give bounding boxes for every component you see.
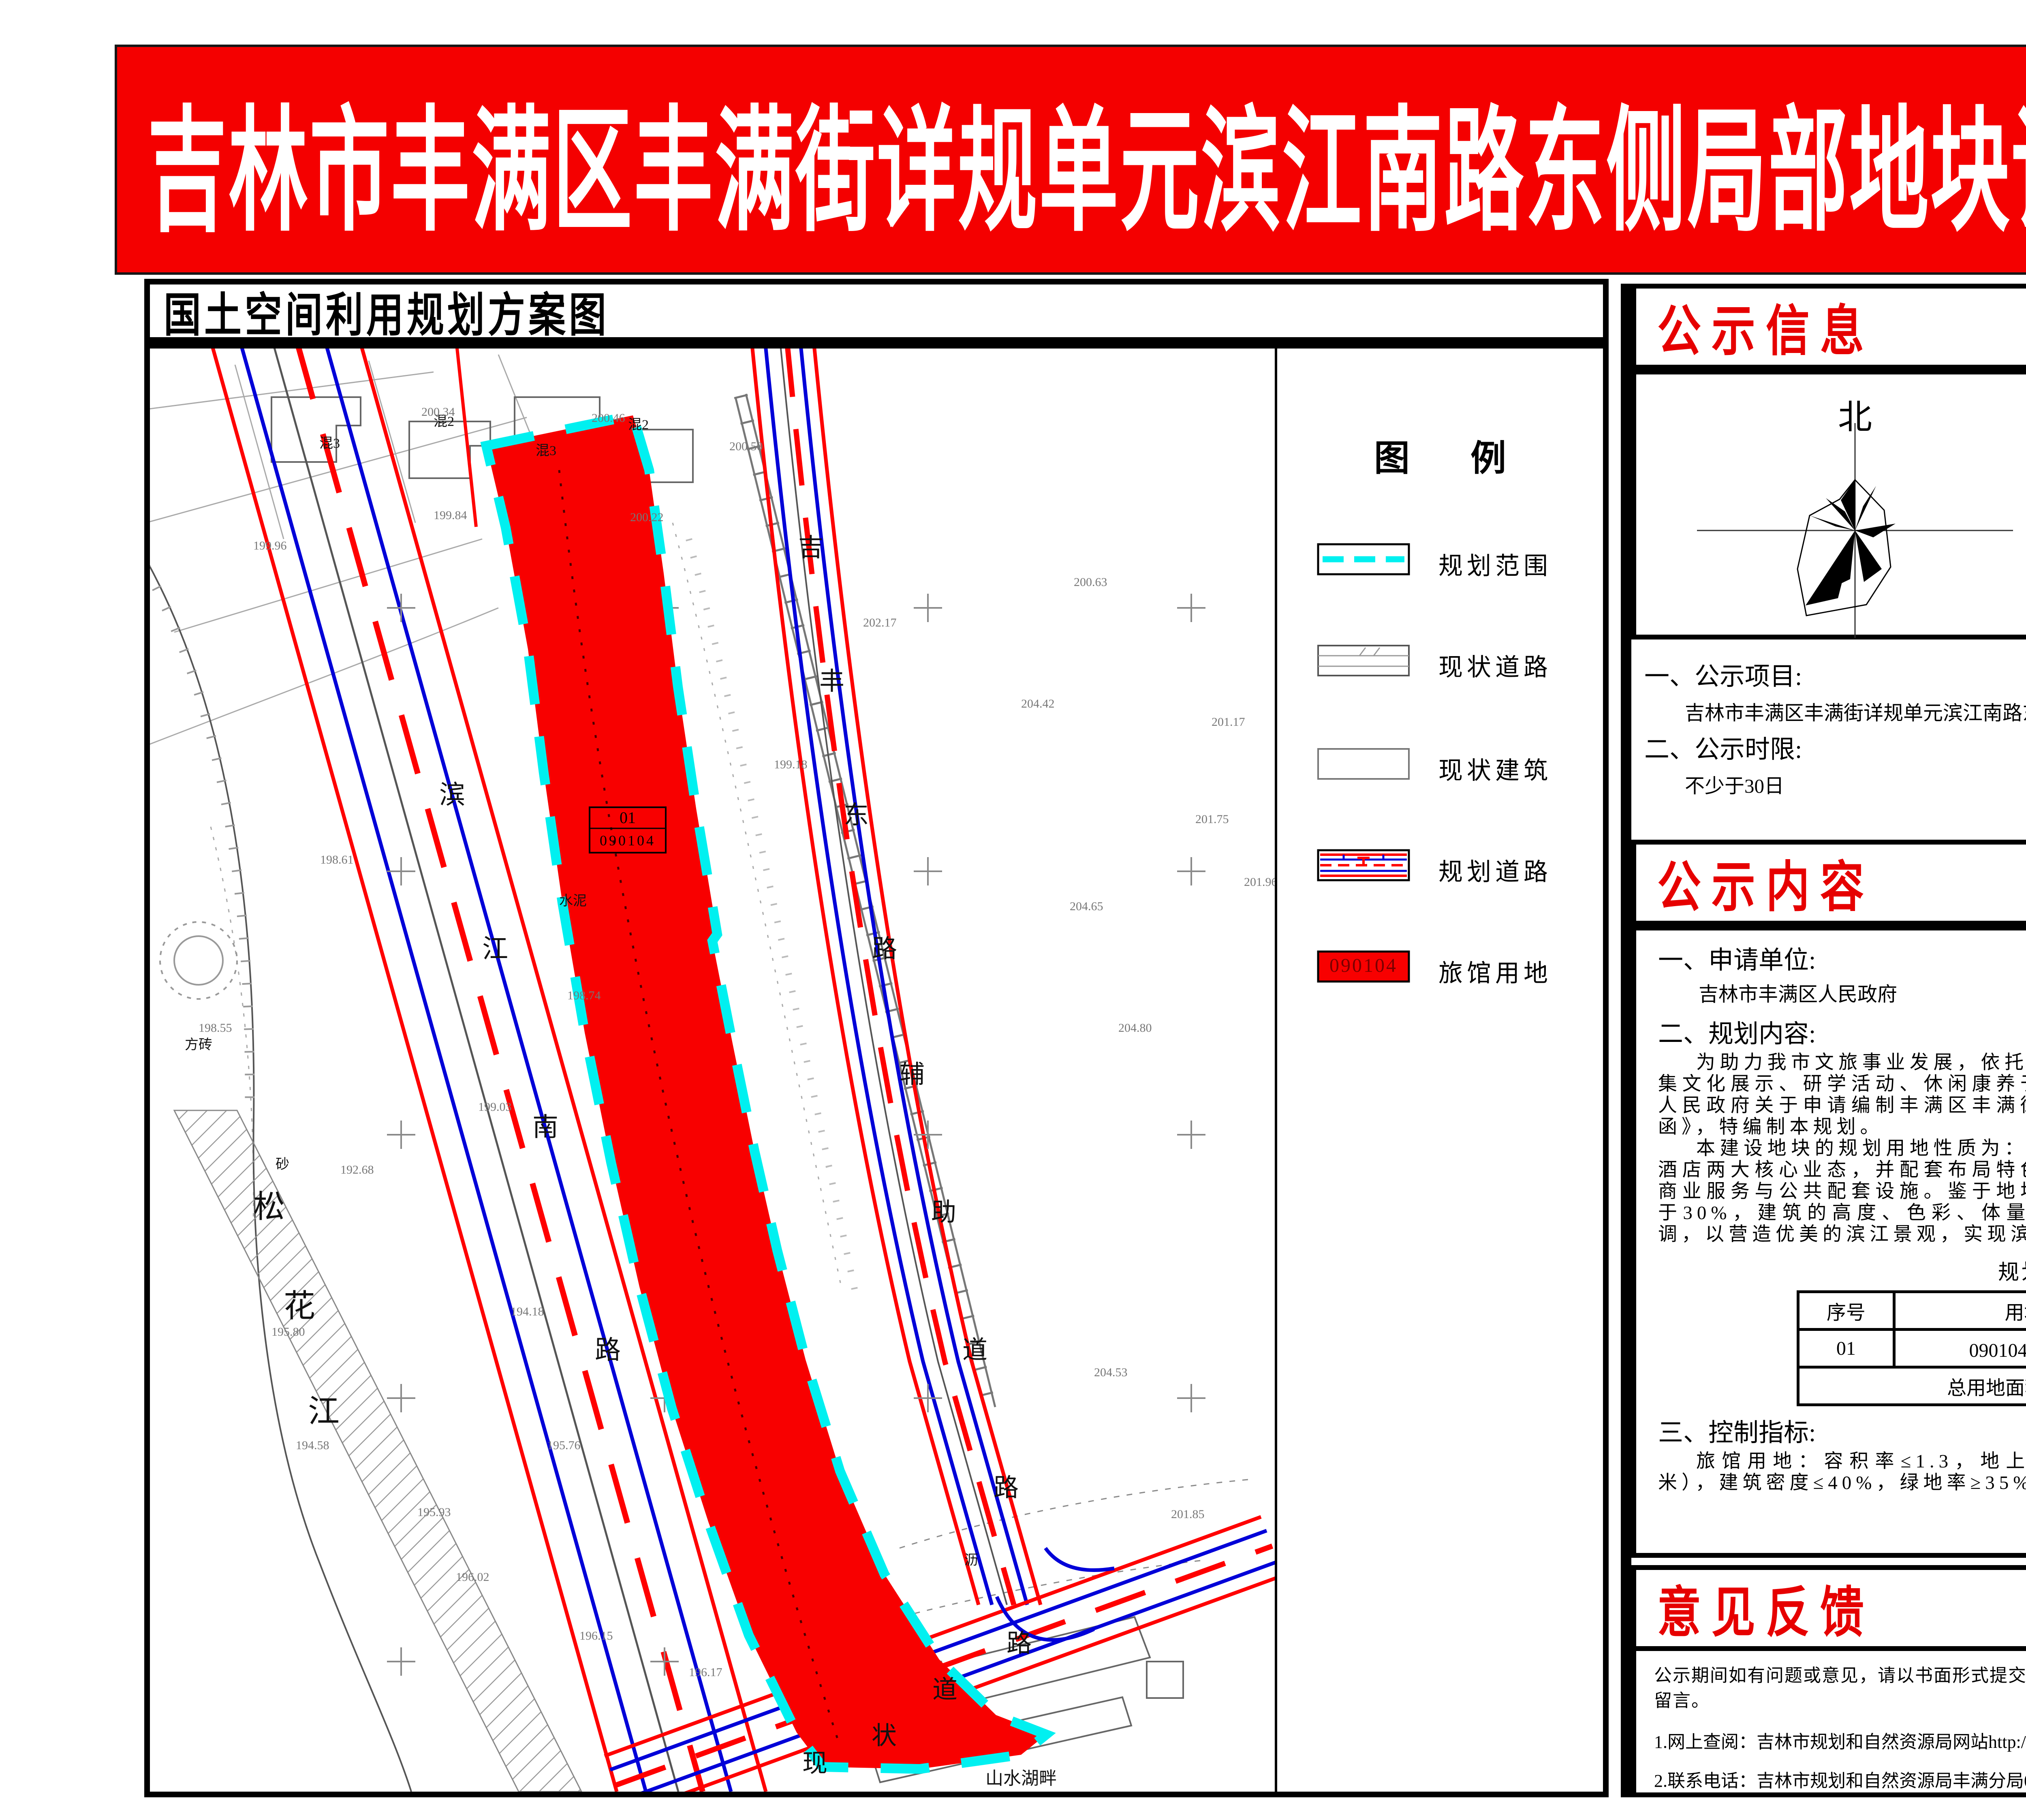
section-header-feedback: 意见反馈 [1631, 1565, 2026, 1651]
spot-elevation: 195.93 [417, 1506, 451, 1519]
map-label: 江 [308, 1386, 340, 1431]
map-label: 花 [284, 1281, 315, 1326]
info-item-label: 二、公示时限: [1644, 730, 2026, 769]
legend-item-planning-boundary: 规划范围 [1317, 543, 1601, 580]
legend-item-planned-road: 规划道路 [1317, 849, 1601, 885]
parcel-code: 090104 [590, 829, 666, 852]
legend-item-existing-road: 现状道路 [1317, 644, 1601, 681]
table-header-row: 序号 用地名称 面积（hm²） [1798, 1292, 2026, 1330]
section-header-info: 公示信息 [1631, 284, 2026, 370]
table-header-cell: 用地名称 [1894, 1292, 2026, 1330]
map-label: 混2 [628, 413, 649, 433]
map-labels-layer: 滨江南路吉丰东路辅助道路现状道路松花江方砖砂水泥沥混3混2混3混2山水湖畔200… [150, 349, 1275, 1792]
map-label: 砂 [276, 1153, 289, 1173]
map-heading-text: 国土空间利用规划方案图 [164, 277, 609, 344]
spot-elevation: 199.18 [774, 758, 808, 772]
legend: 图例 规划范围 现状道路 [1277, 349, 1603, 1792]
feedback-line: 1.网上查阅：吉林市规划和自然资源局网站http://ghzr.jlcity.g… [1654, 1730, 2026, 1755]
table-header-cell: 序号 [1798, 1292, 1894, 1330]
feedback-line: 公示期间如有问题或意见，请以书面形式提交或提出书面听证申请，或在吉林市规划和自然… [1654, 1663, 2026, 1713]
map-label: 山水湖畔 [985, 1764, 1057, 1790]
map-label: 道 [962, 1329, 987, 1366]
spot-elevation: 194.18 [511, 1305, 544, 1319]
spot-elevation: 199.96 [253, 539, 287, 553]
title-banner: 吉林市丰满区丰满街详规单元滨江南路东侧局部地块详细规划公示 [115, 45, 2026, 275]
table-row: 01 090104(旅馆用地) 1.89 [1798, 1330, 2026, 1367]
feedback-box: 公示期间如有问题或意见，请以书面形式提交或提出书面听证申请，或在吉林市规划和自然… [1631, 1646, 2026, 1797]
map-label: 助 [931, 1191, 956, 1228]
map-label: 路 [994, 1467, 1019, 1503]
spot-elevation: 202.17 [863, 616, 897, 630]
planning-paragraph-2: 本建设地块的规划用地性质为：旅馆用地，拟建设高品质康养酒店和主题研学酒店两大核心… [1658, 1138, 2026, 1245]
right-column-rule [1621, 284, 1631, 1797]
map-label: 路 [1007, 1623, 1032, 1659]
feedback-line: 2.联系电话：吉林市规划和自然资源局丰满分局0432-64564008 [1654, 1769, 2026, 1794]
north-compass-box: 北 [1631, 370, 2026, 639]
table-total-label: 总用地面积 [1798, 1367, 2026, 1405]
spot-elevation: 204.80 [1118, 1021, 1152, 1035]
info-text-block: 一、公示项目: 吉林市丰满区丰满街详规单元滨江南路东侧局部地块详细规划 二、公示… [1644, 657, 2026, 803]
spot-elevation: 200.22 [630, 511, 664, 524]
legend-item-hotel-land: 090104 旅馆用地 [1317, 950, 1601, 987]
map-label: 丰 [819, 661, 844, 697]
planning-paragraph-1: 为助力我市文旅事业发展，依托滨江区位优势，传承造船非遗文化，规划打造集文化展示、… [1658, 1052, 2026, 1138]
map-label: 现 [802, 1743, 827, 1779]
map-label: 沥 [964, 1549, 978, 1569]
spot-elevation: 201.85 [1171, 1508, 1205, 1521]
map-label: 东 [844, 794, 869, 831]
spot-elevation: 192.68 [340, 1163, 374, 1177]
map-label: 滨 [439, 774, 465, 811]
land-use-table: 序号 用地名称 面积（hm²） 01 090104(旅馆用地) 1.89 总用地… [1797, 1290, 2026, 1406]
spot-elevation: 204.42 [1021, 697, 1055, 711]
spot-elevation: 201.17 [1212, 715, 1245, 729]
existing-building-swatch [1317, 748, 1410, 780]
spot-elevation: 198.55 [199, 1021, 232, 1035]
land-use-plan-map: 滨江南路吉丰东路辅助道路现状道路松花江方砖砂水泥沥混3混2混3混2山水湖畔200… [144, 343, 1609, 1797]
content-box: 一、申请单位: 吉林市丰满区人民政府 二、规划内容: 为助力我市文旅事业发展，依… [1631, 926, 2026, 1558]
spot-elevation: 200.50 [729, 440, 763, 453]
hotel-land-code: 090104 [1317, 954, 1410, 977]
spot-elevation: 195.80 [271, 1325, 305, 1339]
map-label: 辅 [900, 1054, 925, 1090]
map-label: 混3 [319, 432, 340, 452]
map-section-heading: 国土空间利用规划方案图 [144, 279, 1609, 343]
planning-boundary-swatch [1317, 543, 1410, 575]
map-label: 南 [532, 1106, 558, 1144]
info-header-text: 公示信息 [1657, 287, 1874, 366]
spot-elevation: 201.75 [1195, 813, 1229, 826]
table-cell: 090104(旅馆用地) [1894, 1330, 2026, 1367]
info-item-value: 不少于30日 [1644, 769, 2026, 803]
map-label: 江 [482, 928, 508, 965]
existing-road-swatch [1317, 644, 1410, 677]
map-label: 吉 [798, 527, 823, 563]
applicant-label: 一、申请单位: [1658, 943, 2026, 978]
spot-elevation: 201.96 [1244, 875, 1278, 889]
map-label: 道 [932, 1669, 957, 1705]
map-label: 路 [595, 1329, 621, 1367]
map-label: 状 [872, 1715, 897, 1752]
table-total-row: 总用地面积 1.89 [1798, 1367, 2026, 1405]
planning-label: 二、规划内容: [1658, 1016, 2026, 1052]
map-label: 方砖 [185, 1033, 212, 1053]
north-arrow [1636, 423, 2026, 638]
indicators-text: 旅馆用地：容积率≤1.3，地上建筑限高≤24米（单栋标志性建筑高度≤35米），建… [1658, 1451, 2026, 1494]
map-label: 松 [253, 1181, 285, 1227]
map-label: 混3 [536, 439, 556, 459]
land-use-table-title: 规划用地汇总表 [1658, 1255, 2026, 1285]
applicant-value: 吉林市丰满区人民政府 [1658, 978, 2026, 1011]
spot-elevation: 200.63 [1074, 575, 1107, 589]
indicators-label: 三、控制指标: [1658, 1415, 2026, 1451]
spot-elevation: 200.46 [592, 411, 625, 425]
info-item-value: 吉林市丰满区丰满街详规单元滨江南路东侧局部地块详细规划 [1644, 696, 2026, 730]
compass-star [1806, 480, 1896, 605]
spot-elevation: 199.03 [478, 1100, 512, 1114]
planned-road-swatch [1317, 849, 1410, 881]
spot-elevation: 198.74 [567, 989, 601, 1003]
section-header-content: 公示内容 [1631, 840, 2026, 926]
feedback-header-text: 意见反馈 [1657, 1569, 1874, 1648]
page-title: 吉林市丰满区丰满街详规单元滨江南路东侧局部地块详细规划公示 [147, 62, 2026, 257]
info-item-label: 一、公示项目: [1644, 657, 2026, 696]
table-cell: 01 [1798, 1330, 1894, 1367]
legend-title: 图例 [1277, 430, 1603, 481]
spot-elevation: 195.76 [547, 1439, 581, 1452]
legend-item-existing-building: 现状建筑 [1317, 748, 1601, 784]
spot-elevation: 200.34 [421, 405, 455, 419]
spot-elevation: 196.15 [579, 1629, 613, 1643]
spot-elevation: 204.53 [1094, 1366, 1128, 1379]
spot-elevation: 199.84 [434, 509, 467, 522]
spot-elevation: 204.65 [1070, 900, 1103, 913]
parcel-number: 01 [590, 807, 666, 828]
map-label: 水泥 [559, 890, 587, 909]
content-header-text: 公示内容 [1657, 843, 1874, 922]
map-label: 路 [872, 928, 897, 965]
spot-elevation: 196.17 [689, 1666, 722, 1679]
spot-elevation: 194.58 [296, 1439, 329, 1452]
spot-elevation: 196.02 [456, 1570, 489, 1584]
spot-elevation: 198.61 [320, 853, 354, 867]
planning-notice-poster: 吉林市丰满区丰满街详规单元滨江南路东侧局部地块详细规划公示 国土空间利用规划方案… [0, 0, 2026, 1820]
